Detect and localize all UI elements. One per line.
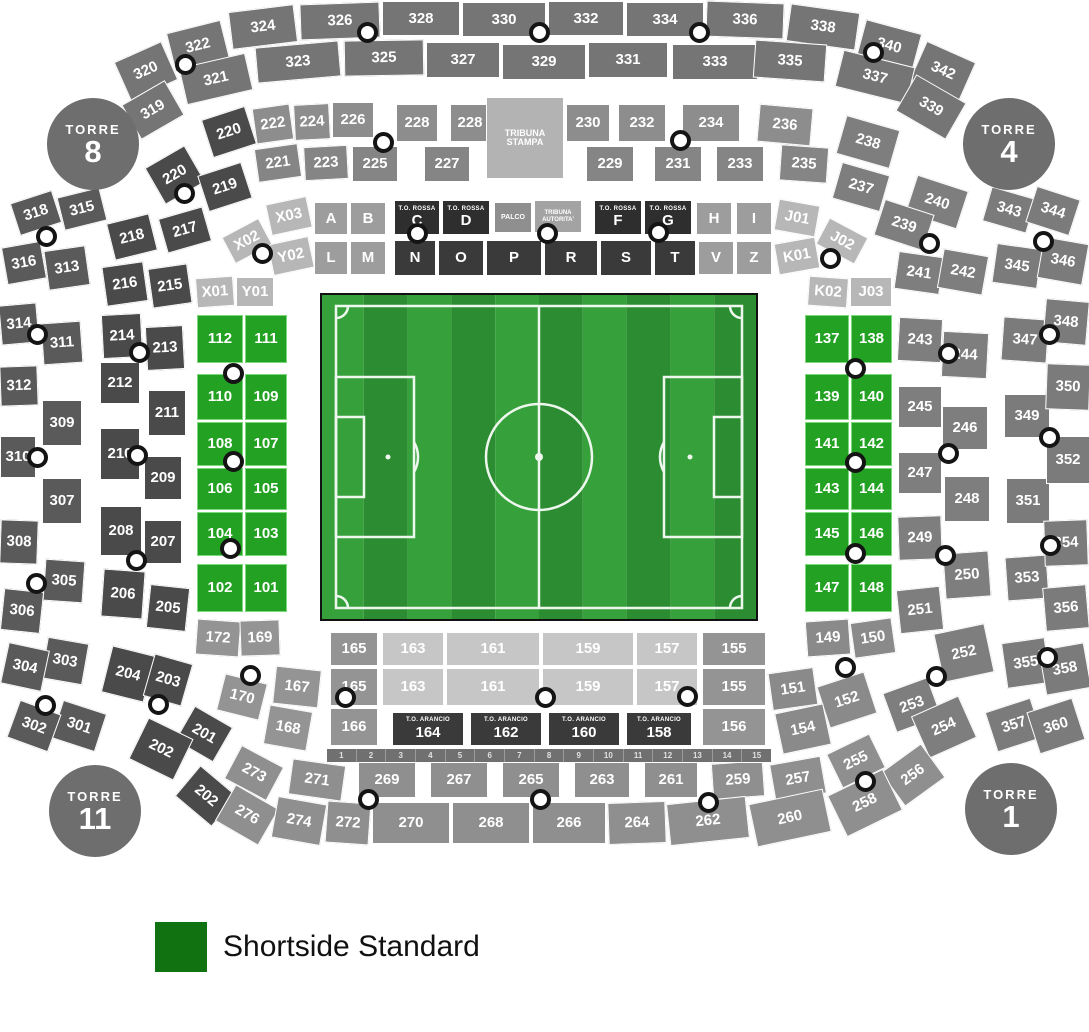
section-sublabel: T.O. ARANCIO	[484, 717, 528, 723]
section-v: V	[698, 241, 734, 275]
row-number: 10	[594, 749, 624, 762]
section-231: 231	[654, 146, 702, 182]
section-305: 305	[43, 559, 86, 604]
section-sublabel: T.O. ARANCIO	[637, 717, 681, 723]
gate-marker-icon	[835, 657, 856, 678]
section-140[interactable]: 140	[851, 374, 892, 420]
section-138[interactable]: 138	[851, 315, 892, 363]
section-235: 235	[779, 144, 829, 183]
section-336: 336	[705, 1, 784, 40]
row-number: 7	[505, 749, 535, 762]
section-208: 208	[100, 506, 142, 556]
section-259: 259	[711, 760, 765, 800]
section-107[interactable]: 107	[245, 422, 287, 466]
section-label: 164	[415, 725, 440, 741]
row-number: 8	[535, 749, 565, 762]
section-212: 212	[100, 362, 140, 404]
row-number: 13	[683, 749, 713, 762]
section-a: A	[314, 202, 348, 235]
section-345: 345	[991, 243, 1042, 289]
section-111[interactable]: 111	[245, 315, 287, 363]
section-209: 209	[144, 456, 182, 500]
section-226: 226	[332, 102, 374, 138]
section-168: 168	[263, 704, 313, 751]
section-220: 220	[201, 106, 257, 158]
section-156: 156	[702, 708, 766, 746]
gate-marker-icon	[26, 573, 47, 594]
section-y01: Y01	[236, 277, 274, 307]
section-216: 216	[101, 261, 148, 306]
section-329: 329	[502, 44, 586, 80]
section-227: 227	[424, 146, 470, 182]
section-323: 323	[255, 40, 342, 83]
section-219: 219	[197, 162, 252, 212]
section-139[interactable]: 139	[805, 374, 849, 420]
section-label: D	[461, 213, 472, 229]
gate-marker-icon	[36, 226, 57, 247]
row-number: 11	[624, 749, 654, 762]
section-222: 222	[252, 104, 295, 145]
section-163: 163	[382, 668, 444, 706]
gate-marker-icon	[863, 42, 884, 63]
row-number: 2	[357, 749, 387, 762]
tower-number: 8	[84, 136, 101, 167]
gate-marker-icon	[335, 687, 356, 708]
section-271: 271	[288, 758, 346, 801]
legend-label: Shortside Standard	[223, 930, 480, 964]
row-number: 9	[564, 749, 594, 762]
section-356: 356	[1042, 584, 1089, 632]
tower-8: TORRE8	[47, 98, 139, 190]
gate-marker-icon	[220, 538, 241, 559]
section-147[interactable]: 147	[805, 564, 849, 612]
section-333: 333	[672, 44, 758, 80]
gate-marker-icon	[35, 695, 56, 716]
section-311: 311	[41, 321, 84, 366]
section-159: 159	[542, 668, 634, 706]
section-j03: J03	[850, 277, 892, 307]
gate-marker-icon	[1039, 427, 1060, 448]
section-f: T.O. ROSSAF	[594, 200, 642, 235]
section-k01: K01	[774, 237, 821, 276]
gate-marker-icon	[935, 545, 956, 566]
gate-marker-icon	[174, 183, 195, 204]
section-218: 218	[106, 213, 158, 261]
gate-marker-icon	[240, 665, 261, 686]
section-242: 242	[937, 248, 989, 295]
section-260: 260	[748, 789, 831, 848]
section-145[interactable]: 145	[805, 512, 849, 556]
section-d: T.O. ROSSAD	[442, 200, 490, 235]
gate-marker-icon	[698, 792, 719, 813]
section-308: 308	[0, 519, 39, 564]
section-232: 232	[618, 104, 666, 142]
pitch-graphic	[320, 293, 758, 621]
gate-marker-icon	[537, 223, 558, 244]
gate-marker-icon	[223, 451, 244, 472]
section-palco: PALCO	[494, 202, 532, 233]
section-s: S	[600, 240, 652, 276]
center-spot	[535, 453, 543, 461]
section-150: 150	[850, 617, 897, 658]
section-344: 344	[1025, 186, 1080, 236]
section-234: 234	[682, 104, 740, 142]
gate-marker-icon	[373, 132, 394, 153]
section-158: T.O. ARANCIO158	[626, 712, 692, 746]
section-160: T.O. ARANCIO160	[548, 712, 620, 746]
gate-marker-icon	[820, 248, 841, 269]
section-229: 229	[586, 146, 634, 182]
section-109[interactable]: 109	[245, 374, 287, 420]
gate-marker-icon	[670, 130, 691, 151]
section-148[interactable]: 148	[851, 564, 892, 612]
section-251: 251	[896, 586, 944, 634]
section-327: 327	[426, 42, 500, 78]
section-228: 228	[396, 104, 438, 142]
section-102[interactable]: 102	[197, 564, 243, 612]
section-106[interactable]: 106	[197, 468, 243, 510]
gate-marker-icon	[677, 686, 698, 707]
legend-color-swatch	[155, 922, 207, 972]
section-112[interactable]: 112	[197, 315, 243, 363]
section-225: 225	[352, 146, 398, 182]
row-number: 14	[713, 749, 743, 762]
gate-marker-icon	[148, 694, 169, 715]
gate-marker-icon	[926, 666, 947, 687]
section-164: T.O. ARANCIO164	[392, 712, 464, 746]
section-206: 206	[100, 569, 145, 620]
section-o: O	[438, 240, 484, 276]
gate-marker-icon	[407, 223, 428, 244]
section-350: 350	[1045, 363, 1089, 411]
gate-marker-icon	[127, 445, 148, 466]
gate-marker-icon	[845, 543, 866, 564]
section-k02: K02	[807, 276, 849, 309]
section-157: 157	[636, 632, 698, 666]
gate-marker-icon	[126, 550, 147, 571]
section-270: 270	[372, 802, 450, 844]
gate-marker-icon	[919, 233, 940, 254]
tower-1: TORRE1	[965, 763, 1057, 855]
row-number: 1	[327, 749, 357, 762]
row-number: 15	[742, 749, 771, 762]
gate-marker-icon	[357, 22, 378, 43]
football-pitch	[320, 293, 758, 621]
section-163: 163	[382, 632, 444, 666]
section-233: 233	[716, 146, 764, 182]
section-325: 325	[344, 39, 425, 76]
gate-marker-icon	[1039, 324, 1060, 345]
stadium-map: Shortside Standard 320322324326328330332…	[0, 0, 1089, 1032]
section-162: T.O. ARANCIO162	[470, 712, 542, 746]
section-248: 248	[944, 476, 990, 522]
section-l: L	[314, 241, 348, 275]
section-328: 328	[382, 1, 460, 36]
tower-11: TORRE11	[49, 765, 141, 857]
row-number: 12	[653, 749, 683, 762]
section-351: 351	[1006, 478, 1050, 524]
section-155: 155	[702, 668, 766, 706]
section-166: 166	[330, 708, 378, 746]
section-223: 223	[303, 145, 349, 181]
section-230: 230	[566, 104, 610, 142]
gate-marker-icon	[938, 343, 959, 364]
gate-marker-icon	[855, 771, 876, 792]
section-144[interactable]: 144	[851, 468, 892, 510]
section-274: 274	[271, 796, 328, 846]
section-j01: J01	[774, 199, 821, 238]
section-x03: X03	[265, 196, 313, 236]
row-number: 5	[446, 749, 476, 762]
section-315: 315	[57, 187, 108, 231]
gate-marker-icon	[529, 22, 550, 43]
gate-marker-icon	[1037, 647, 1058, 668]
section-103[interactable]: 103	[245, 512, 287, 556]
section-sublabel: T.O. ARANCIO	[406, 717, 450, 723]
section-301: 301	[51, 700, 107, 752]
section-211: 211	[148, 390, 186, 436]
section-b: B	[350, 202, 386, 235]
section-161: 161	[446, 632, 540, 666]
section-306: 306	[0, 588, 44, 634]
section-169: 169	[239, 619, 280, 656]
section-236: 236	[756, 104, 813, 147]
section-y02: Y02	[267, 236, 315, 276]
section-238: 238	[836, 115, 901, 169]
tower-number: 1	[1002, 801, 1019, 832]
gate-marker-icon	[1033, 231, 1054, 252]
gate-marker-icon	[648, 222, 669, 243]
section-331: 331	[588, 42, 668, 78]
section-215: 215	[147, 263, 192, 308]
section-label: 162	[493, 725, 518, 741]
section-167: 167	[272, 666, 322, 709]
legend: Shortside Standard	[155, 922, 480, 972]
section-261: 261	[644, 762, 698, 798]
section-241: 241	[894, 251, 945, 295]
section-217: 217	[158, 206, 212, 253]
section-324: 324	[228, 4, 298, 50]
section-101[interactable]: 101	[245, 564, 287, 612]
section-207: 207	[144, 520, 182, 564]
penalty-spot-left	[386, 455, 391, 460]
tower-4: TORRE4	[963, 98, 1055, 190]
gate-marker-icon	[530, 789, 551, 810]
gate-marker-icon	[535, 687, 556, 708]
section-312: 312	[0, 365, 39, 406]
section-303: 303	[41, 637, 90, 686]
section-151: 151	[768, 667, 819, 711]
section-r: R	[544, 240, 598, 276]
section-105[interactable]: 105	[245, 468, 287, 510]
section-309: 309	[42, 400, 82, 446]
section-304: 304	[0, 642, 50, 692]
row-number-strip: 123456789101112131415	[326, 748, 772, 763]
section-267: 267	[430, 762, 488, 798]
section-159: 159	[542, 632, 634, 666]
section-i: I	[736, 202, 772, 235]
gate-marker-icon	[27, 447, 48, 468]
gate-marker-icon	[129, 342, 150, 363]
section-221: 221	[254, 143, 302, 183]
section-332: 332	[548, 1, 624, 36]
section-z: Z	[736, 241, 772, 275]
gate-marker-icon	[845, 358, 866, 379]
section-tribuna-stampa: TRIBUNA STAMPA	[486, 97, 564, 179]
gate-marker-icon	[938, 443, 959, 464]
section-label: 160	[571, 725, 596, 741]
section-137[interactable]: 137	[805, 315, 849, 363]
section-p: P	[486, 240, 542, 276]
section-154: 154	[774, 703, 832, 754]
section-n: N	[394, 240, 436, 276]
section-247: 247	[898, 452, 942, 494]
gate-marker-icon	[223, 363, 244, 384]
section-335: 335	[753, 40, 827, 83]
tower-number: 4	[1000, 136, 1017, 167]
gate-marker-icon	[358, 789, 379, 810]
section-316: 316	[1, 241, 47, 285]
section-label: 158	[646, 725, 671, 741]
section-141[interactable]: 141	[805, 422, 849, 466]
section-313: 313	[43, 245, 90, 290]
gate-marker-icon	[1040, 535, 1061, 556]
section-245: 245	[898, 386, 942, 428]
section-264: 264	[607, 801, 666, 845]
section-149: 149	[805, 619, 851, 658]
section-205: 205	[146, 584, 190, 632]
section-165: 165	[330, 632, 378, 666]
section-h: H	[696, 202, 732, 235]
section-m: M	[350, 241, 386, 275]
section-307: 307	[42, 478, 82, 524]
gate-marker-icon	[252, 243, 273, 264]
gate-marker-icon	[27, 324, 48, 345]
section-268: 268	[452, 802, 530, 844]
section-243: 243	[897, 317, 943, 363]
penalty-spot-right	[688, 455, 693, 460]
section-sublabel: T.O. ARANCIO	[562, 717, 606, 723]
gate-marker-icon	[175, 54, 196, 75]
section-237: 237	[832, 162, 891, 212]
section-161: 161	[446, 668, 540, 706]
section-155: 155	[702, 632, 766, 666]
row-number: 6	[475, 749, 505, 762]
section-213: 213	[145, 325, 185, 371]
section-x01: X01	[195, 276, 235, 309]
section-172: 172	[195, 619, 241, 658]
section-224: 224	[293, 103, 331, 141]
section-143[interactable]: 143	[805, 468, 849, 510]
gate-marker-icon	[689, 22, 710, 43]
gate-marker-icon	[845, 452, 866, 473]
row-number: 3	[386, 749, 416, 762]
section-label: F	[613, 213, 622, 229]
section-360: 360	[1026, 698, 1085, 755]
section-263: 263	[574, 762, 630, 798]
tower-number: 11	[79, 803, 112, 834]
section-t: T	[654, 240, 696, 276]
section-228: 228	[450, 104, 490, 142]
row-number: 4	[416, 749, 446, 762]
